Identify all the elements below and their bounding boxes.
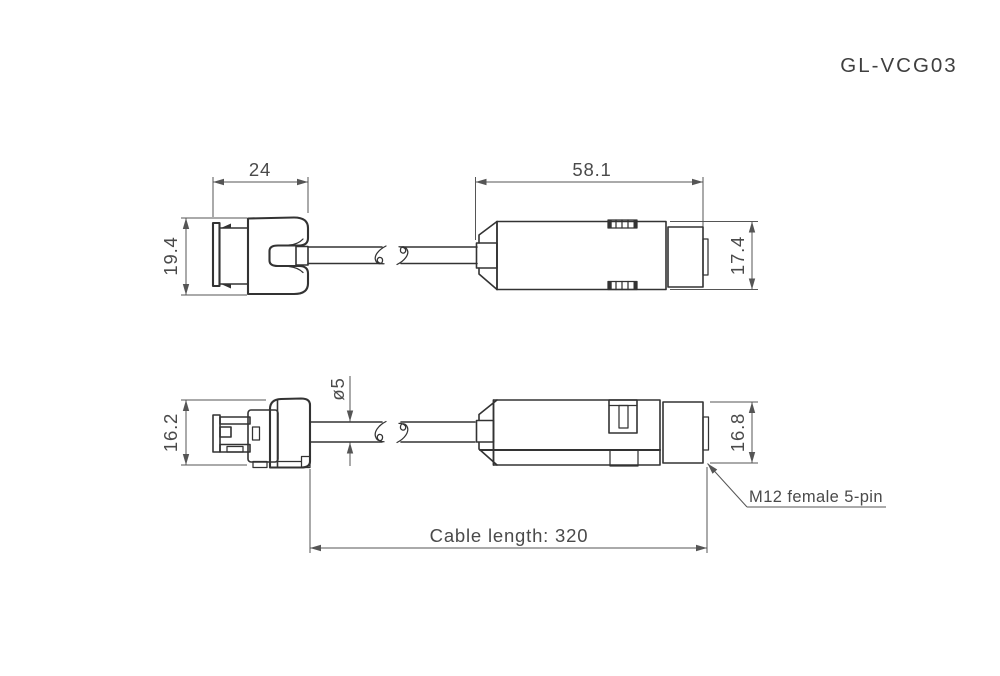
dim-connector-height-value: 17.4 [727, 236, 748, 275]
cable-break-symbol [397, 247, 408, 265]
latch-cap [609, 221, 612, 228]
cable-side-view [310, 422, 475, 443]
plug-latch-bar [213, 415, 220, 452]
dim-cable-length: Cable length: 320 [310, 467, 707, 553]
m12-leader-callout: M12 female 5-pin [708, 464, 887, 508]
cable-break-symbol [375, 246, 386, 264]
cable-top-view [308, 246, 477, 265]
m12-coupling-top-view [668, 227, 703, 287]
strain-relief-detail [289, 267, 303, 273]
dim-connector-height: 17.4 [670, 222, 758, 290]
dim-cable-length-value: Cable length: 320 [430, 525, 589, 546]
cable-entry-nub [477, 421, 494, 443]
latch-button-slot [619, 406, 628, 429]
latch-cap [634, 282, 637, 289]
dim-cable-diameter-value: ø5 [327, 377, 348, 400]
connector-bottom-notch [610, 450, 638, 466]
top-view: 24 19.4 [160, 159, 758, 295]
connector-body [497, 222, 666, 290]
plug-latch-hook [222, 285, 231, 289]
plug-latch-arm [220, 417, 250, 424]
cable-break-symbol [397, 423, 408, 442]
plug-latch-hook [222, 224, 231, 228]
dim-connector-side-height: 16.8 [710, 402, 758, 463]
latch-button [609, 400, 637, 433]
dim-plug-width-value: 24 [249, 159, 271, 180]
technical-drawing: GL-VCG03 24 19.4 [0, 0, 1000, 676]
plug-side-view [213, 399, 310, 468]
m12-connector-label: M12 female 5-pin [749, 488, 883, 506]
cable-entry-nub [477, 243, 498, 268]
plug-latch-arm [220, 445, 250, 453]
dim-connector-length: 58.1 [476, 159, 704, 240]
connector-top-view [477, 220, 709, 290]
drawing-canvas: GL-VCG03 24 19.4 [0, 0, 1000, 676]
m12-coupling-step [703, 417, 709, 450]
dim-plug-width: 24 [213, 159, 308, 217]
plug-body [220, 228, 249, 284]
latch-cap [634, 221, 637, 228]
dim-cable-diameter: ø5 [327, 376, 350, 466]
dim-plug-side-height-value: 16.2 [160, 413, 181, 452]
dim-connector-length-value: 58.1 [572, 159, 611, 180]
strain-relief-detail [289, 239, 303, 245]
drawing-title: GL-VCG03 [840, 54, 957, 77]
dim-plug-height-value: 19.4 [160, 236, 181, 275]
plug-latch-tooth [220, 427, 231, 437]
plug-flange [213, 223, 220, 286]
plug-slot-detail [253, 427, 260, 440]
latch-detail-bottom [608, 282, 637, 290]
plug-latch-arm-detail [227, 447, 243, 453]
m12-coupling-side-view [663, 402, 703, 463]
dim-connector-side-height-value: 16.8 [727, 413, 748, 452]
bottom-view: 16.2 ø [160, 376, 886, 553]
connector-side-view [477, 400, 709, 466]
plug-strain-relief [248, 218, 308, 295]
plug-strain-relief-side [270, 399, 310, 468]
cable-clamp [296, 247, 308, 266]
latch-cap [609, 282, 612, 289]
cable-break-symbol [375, 422, 386, 442]
leader-line [708, 464, 748, 508]
connector-cap-chamfer [479, 222, 497, 290]
plug-top-view [213, 218, 308, 295]
